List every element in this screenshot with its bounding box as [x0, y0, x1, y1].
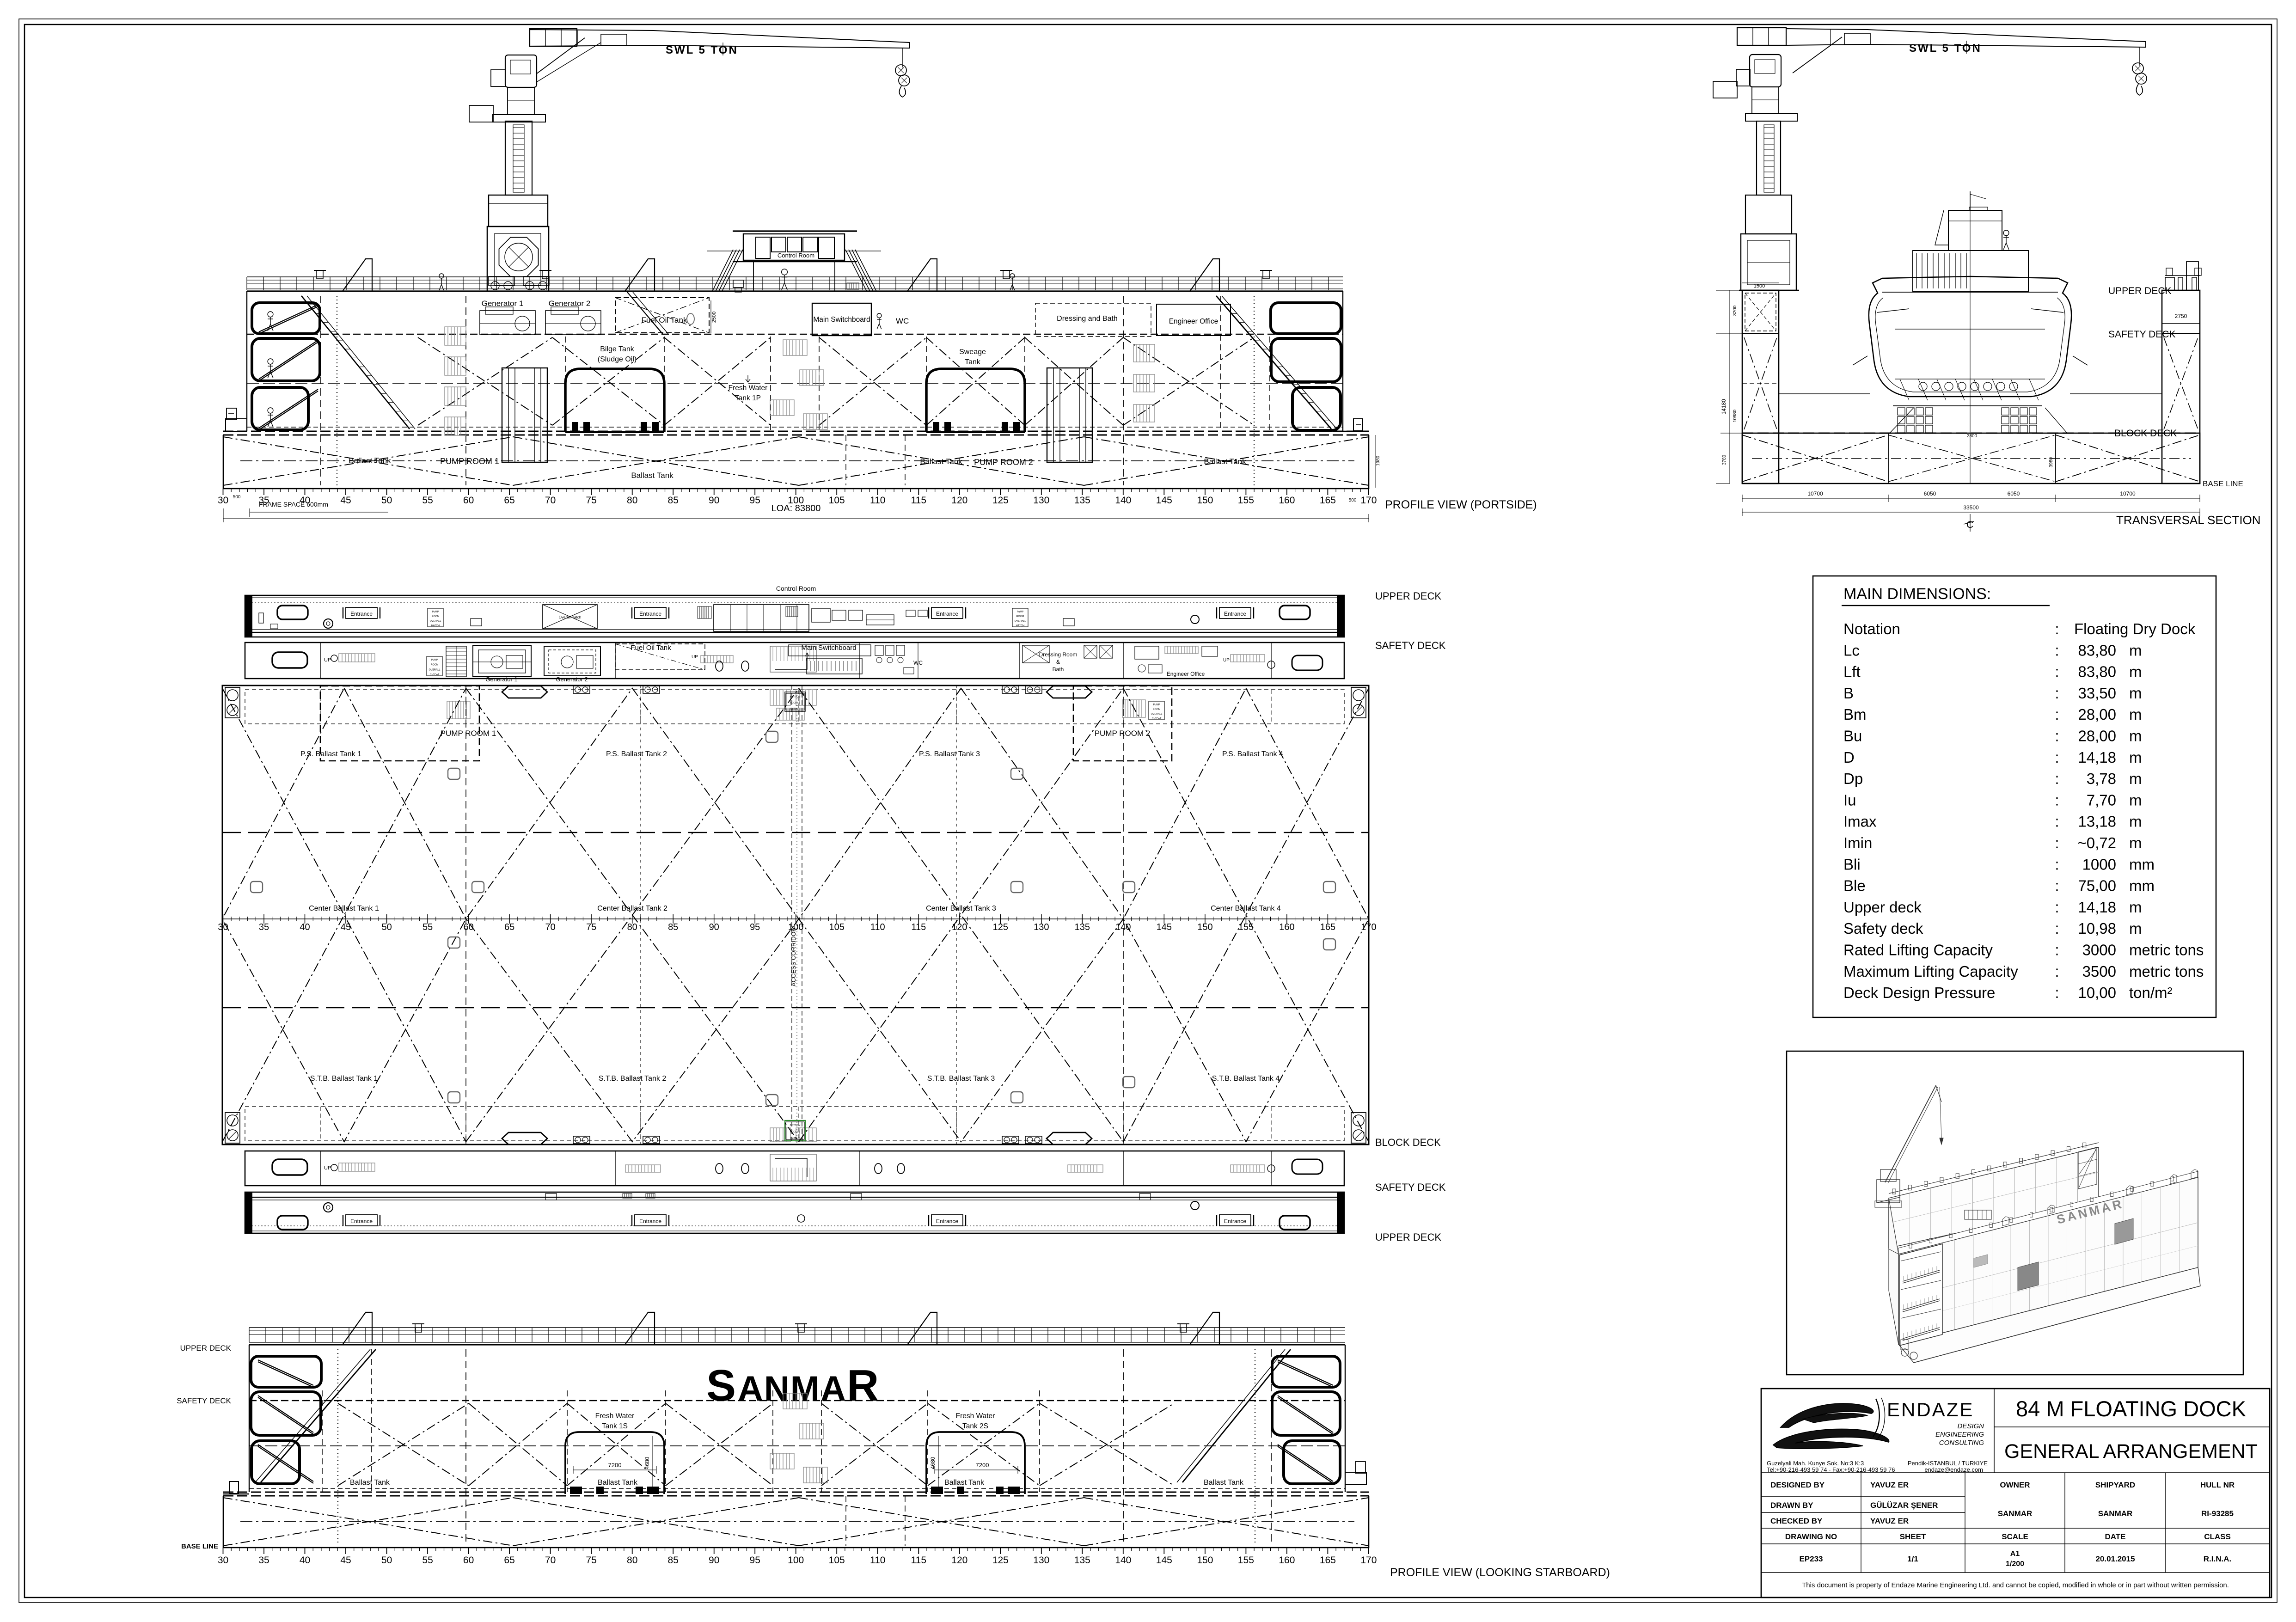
svg-text:95: 95 — [750, 1555, 760, 1566]
svg-text:130: 130 — [1034, 922, 1049, 932]
svg-text:This document is property of: This document is property of Endaze Mari… — [1802, 1581, 2229, 1589]
svg-text:EP233: EP233 — [1799, 1555, 1823, 1563]
svg-text:145: 145 — [1156, 495, 1172, 506]
svg-text:80: 80 — [627, 922, 637, 932]
svg-text:HATCH: HATCH — [1016, 624, 1024, 627]
svg-text:Bu: Bu — [1843, 728, 1862, 745]
svg-text:Tank 1P: Tank 1P — [735, 394, 761, 402]
svg-text:6050: 6050 — [1924, 490, 1936, 497]
svg-text:1980: 1980 — [1376, 455, 1381, 466]
svg-text:Ballast Tank: Ballast Tank — [920, 457, 962, 466]
svg-text:120: 120 — [951, 495, 967, 506]
svg-text:Tel:+90-216-493 59 74 - Fax:+9: Tel:+90-216-493 59 74 - Fax:+90-216-493 … — [1767, 1466, 1895, 1473]
svg-text:Ble: Ble — [1843, 877, 1866, 894]
svg-text:S.T.B. Ballast Tank 2: S.T.B. Ballast Tank 2 — [599, 1075, 667, 1083]
svg-text:45: 45 — [341, 922, 351, 932]
svg-text::: : — [2055, 663, 2059, 680]
svg-text:Entrance: Entrance — [936, 611, 958, 617]
svg-text:130: 130 — [1033, 1555, 1049, 1566]
svg-text:HULL NR: HULL NR — [2200, 1481, 2235, 1489]
svg-text:45: 45 — [340, 495, 351, 506]
svg-text:60: 60 — [463, 495, 474, 506]
svg-text:Sweage: Sweage — [959, 348, 986, 356]
svg-text::: : — [2055, 984, 2059, 1001]
svg-text:S.T.B. Ballast Tank 1: S.T.B. Ballast Tank 1 — [310, 1075, 378, 1083]
svg-text:ROOM: ROOM — [431, 664, 439, 667]
svg-text:Dp: Dp — [1843, 770, 1863, 787]
svg-text:75: 75 — [586, 922, 596, 932]
svg-text:155: 155 — [1238, 1555, 1254, 1566]
svg-text:Ballast Tank: Ballast Tank — [1204, 1479, 1244, 1487]
svg-text:83,80: 83,80 — [2078, 663, 2116, 680]
svg-text:TRANSVERSAL SECTION: TRANSVERSAL SECTION — [2116, 513, 2261, 527]
svg-text:1000: 1000 — [2082, 856, 2116, 873]
svg-text:40: 40 — [300, 1555, 310, 1566]
svg-text:SHEET: SHEET — [1900, 1532, 1926, 1541]
svg-text:Bath: Bath — [1053, 666, 1064, 673]
svg-text:115: 115 — [911, 922, 926, 932]
svg-text:95: 95 — [750, 495, 760, 506]
svg-text:3200: 3200 — [1733, 305, 1738, 316]
svg-text:R.I.N.A.: R.I.N.A. — [2204, 1555, 2231, 1563]
svg-text:1/1: 1/1 — [1907, 1555, 1918, 1563]
svg-text:ANMA: ANMA — [738, 1369, 847, 1408]
svg-text:4680: 4680 — [930, 1457, 936, 1469]
svg-text:metric tons: metric tons — [2129, 942, 2204, 959]
svg-text:SAFETY DECK: SAFETY DECK — [1375, 640, 1446, 651]
svg-text:Tank: Tank — [965, 358, 981, 366]
svg-text:Imin: Imin — [1843, 834, 1872, 851]
svg-text:ROOM: ROOM — [1016, 615, 1024, 618]
svg-text:135: 135 — [1074, 495, 1090, 506]
svg-text:S.T.B. Ballast Tank 4: S.T.B. Ballast Tank 4 — [1212, 1075, 1280, 1083]
svg-text:135: 135 — [1074, 1555, 1090, 1566]
svg-text:Ballast Tank: Ballast Tank — [631, 471, 673, 480]
svg-text:D: D — [1843, 749, 1855, 766]
svg-text::: : — [2055, 620, 2059, 637]
svg-text:115: 115 — [911, 1555, 926, 1566]
svg-text:Entrance: Entrance — [936, 1218, 958, 1224]
svg-text:ton/m²: ton/m² — [2129, 984, 2173, 1001]
svg-text:85: 85 — [668, 495, 679, 506]
svg-text:3,78: 3,78 — [2087, 770, 2116, 787]
svg-text:OVERALL: OVERALL — [429, 668, 441, 671]
svg-text:30: 30 — [218, 1555, 228, 1566]
svg-text:Entrance: Entrance — [639, 1218, 661, 1224]
svg-text:Floating Dry Dock: Floating Dry Dock — [2074, 620, 2196, 637]
svg-text:500: 500 — [233, 495, 241, 500]
svg-text:Control Room: Control Room — [776, 585, 816, 592]
svg-text:155: 155 — [1238, 495, 1254, 506]
svg-text:Engineer Office: Engineer Office — [1169, 318, 1218, 325]
svg-text:45: 45 — [340, 1555, 351, 1566]
svg-text:Fuel Oil Tank: Fuel Oil Tank — [631, 644, 671, 652]
svg-text::: : — [2055, 706, 2059, 723]
svg-text:Generator 1: Generator 1 — [482, 299, 524, 308]
svg-text:OWNER: OWNER — [2000, 1481, 2030, 1489]
svg-text:2800: 2800 — [1967, 434, 1978, 439]
svg-text:OVERALL: OVERALL — [1151, 713, 1163, 716]
svg-text:155: 155 — [1238, 922, 1254, 932]
svg-text:UPPER DECK: UPPER DECK — [1375, 590, 1441, 602]
svg-text:140: 140 — [1115, 922, 1131, 932]
svg-text:120: 120 — [951, 1555, 967, 1566]
svg-text:UP: UP — [1223, 658, 1230, 663]
svg-text:endaze@endaze.com: endaze@endaze.com — [1924, 1466, 1983, 1473]
svg-text:Notation: Notation — [1843, 620, 1900, 637]
svg-text:GENERAL ARRANGEMENT: GENERAL ARRANGEMENT — [2004, 1440, 2258, 1463]
svg-text:S: S — [706, 1361, 736, 1410]
svg-text:70: 70 — [545, 922, 555, 932]
svg-text:ROOM: ROOM — [1153, 708, 1161, 711]
svg-text:105: 105 — [829, 495, 845, 506]
svg-text:m: m — [2129, 899, 2142, 916]
svg-text:33,50: 33,50 — [2078, 685, 2116, 702]
svg-text:SWL 5 TON: SWL 5 TON — [1909, 42, 1982, 55]
svg-text:3980: 3980 — [2049, 457, 2054, 467]
svg-text:50: 50 — [381, 922, 392, 932]
svg-text:Ballast Tank: Ballast Tank — [349, 456, 391, 465]
svg-text:Lft: Lft — [1843, 663, 1861, 680]
svg-text:m: m — [2129, 706, 2142, 723]
svg-text:SANMAR: SANMAR — [1998, 1509, 2033, 1518]
svg-text:160: 160 — [1279, 1555, 1295, 1566]
svg-text:105: 105 — [829, 1555, 845, 1566]
svg-text:20.01.2015: 20.01.2015 — [2095, 1555, 2135, 1563]
svg-text:120: 120 — [952, 922, 967, 932]
svg-text:170: 170 — [1360, 495, 1377, 506]
svg-text:m: m — [2129, 728, 2142, 745]
svg-text:95: 95 — [750, 922, 760, 932]
svg-text:Deck Design Pressure: Deck Design Pressure — [1843, 984, 1995, 1001]
svg-text:135: 135 — [1075, 922, 1090, 932]
svg-text:&: & — [1056, 659, 1060, 665]
svg-text:~0,72: ~0,72 — [2078, 834, 2117, 851]
svg-text:PUMP ROOM 1: PUMP ROOM 1 — [440, 457, 499, 466]
svg-text:75: 75 — [586, 495, 596, 506]
svg-text:LOA: 83800: LOA: 83800 — [771, 503, 821, 514]
svg-text:125: 125 — [992, 495, 1009, 506]
svg-text:CONSULTING: CONSULTING — [1939, 1439, 1984, 1447]
svg-text:Generator 2: Generator 2 — [556, 676, 588, 683]
svg-text:GÜLÜZAR ŞENER: GÜLÜZAR ŞENER — [1870, 1501, 1938, 1510]
svg-text:Generator 2: Generator 2 — [549, 299, 591, 308]
svg-text:Entrance: Entrance — [639, 611, 661, 617]
svg-text:m: m — [2129, 920, 2142, 937]
svg-text:6050: 6050 — [2008, 490, 2020, 497]
svg-text:BASE LINE: BASE LINE — [2203, 479, 2243, 488]
svg-text:100: 100 — [788, 922, 803, 932]
svg-text:55: 55 — [422, 1555, 433, 1566]
svg-text:Fresh Water: Fresh Water — [729, 384, 768, 392]
svg-text::: : — [2055, 749, 2059, 766]
svg-text:BOTTOM: BOTTOM — [790, 1124, 801, 1127]
svg-text:170: 170 — [1361, 922, 1376, 932]
svg-text:84 M FLOATING DOCK: 84 M FLOATING DOCK — [2016, 1396, 2246, 1421]
svg-text:Bm: Bm — [1843, 706, 1867, 723]
svg-text::: : — [2055, 685, 2059, 702]
svg-text:110: 110 — [870, 495, 885, 506]
svg-text:3000: 3000 — [2082, 942, 2116, 959]
svg-text:3780: 3780 — [1722, 454, 1727, 465]
svg-text:30: 30 — [218, 922, 228, 932]
svg-text:150: 150 — [1197, 1555, 1213, 1566]
svg-text:SAFETY DECK: SAFETY DECK — [2108, 329, 2175, 340]
svg-text:SCALE: SCALE — [2002, 1532, 2028, 1541]
svg-text:10700: 10700 — [2120, 490, 2136, 497]
svg-text:80: 80 — [627, 495, 637, 506]
svg-text:55: 55 — [422, 922, 433, 932]
svg-text:PuMP: PuMP — [432, 611, 439, 613]
svg-text:PuMP: PuMP — [431, 659, 438, 661]
svg-text:CuTOuT: CuTOuT — [1152, 717, 1162, 720]
svg-text:DRAWN BY: DRAWN BY — [1770, 1501, 1813, 1510]
svg-text:145: 145 — [1157, 922, 1172, 932]
svg-text:1/200: 1/200 — [2006, 1560, 2024, 1568]
svg-text:50: 50 — [381, 1555, 392, 1566]
svg-text:75: 75 — [586, 1555, 596, 1566]
svg-text:14180: 14180 — [1720, 399, 1727, 415]
svg-text:Overall Hatch: Overall Hatch — [559, 615, 581, 619]
svg-text:Dressing Room: Dressing Room — [1039, 651, 1078, 658]
svg-text:YAVUZ ER: YAVUZ ER — [1870, 1481, 1909, 1489]
svg-text::: : — [2055, 834, 2059, 851]
svg-text:m: m — [2129, 663, 2142, 680]
svg-text:10,98: 10,98 — [2078, 920, 2116, 937]
svg-text::: : — [2055, 877, 2059, 894]
svg-text:28,00: 28,00 — [2078, 706, 2116, 723]
svg-text:Generator 1: Generator 1 — [485, 676, 517, 683]
svg-text:CLASS: CLASS — [2204, 1532, 2231, 1541]
svg-text:m: m — [2129, 834, 2142, 851]
svg-text:SAFETY DECK: SAFETY DECK — [1375, 1181, 1446, 1193]
svg-text:PUMP ROOM 1: PUMP ROOM 1 — [441, 729, 496, 738]
svg-text::: : — [2055, 770, 2059, 787]
svg-text:PuMP: PuMP — [1153, 704, 1160, 706]
svg-text:ENGINEERING: ENGINEERING — [1935, 1431, 1984, 1438]
svg-text::: : — [2055, 791, 2059, 808]
svg-text:Control Room: Control Room — [778, 252, 814, 259]
svg-text:PuMP: PuMP — [1017, 611, 1024, 613]
svg-text:30: 30 — [218, 495, 228, 506]
svg-text:110: 110 — [870, 922, 885, 932]
svg-text:60: 60 — [463, 1555, 474, 1566]
svg-text:140: 140 — [1115, 1555, 1131, 1566]
svg-text:170: 170 — [1360, 1555, 1377, 1566]
svg-text:Entrance: Entrance — [1224, 1218, 1246, 1224]
svg-text:4680: 4680 — [644, 1457, 650, 1469]
svg-text:metric tons: metric tons — [2129, 963, 2204, 980]
svg-text:35: 35 — [259, 922, 269, 932]
svg-text:500: 500 — [1349, 498, 1357, 503]
svg-text:ACCESS: ACCESS — [790, 702, 801, 704]
svg-text:14,18: 14,18 — [2078, 749, 2116, 766]
svg-text:Guzelyali Mah. Kunye Sok. No:3: Guzelyali Mah. Kunye Sok. No:3 K:3 — [1767, 1460, 1864, 1467]
svg-text:m: m — [2129, 770, 2142, 787]
svg-text:Tank 2S: Tank 2S — [962, 1422, 988, 1430]
svg-text:Ballast Tank: Ballast Tank — [350, 1479, 390, 1487]
svg-text:105: 105 — [829, 922, 845, 932]
svg-text:OVERALL: OVERALL — [430, 620, 441, 623]
svg-text:70: 70 — [545, 1555, 556, 1566]
svg-text:Maximum Lifting Capacity: Maximum Lifting Capacity — [1843, 963, 2018, 980]
svg-text:1500: 1500 — [1754, 283, 1765, 289]
svg-text:BLOCK DECK: BLOCK DECK — [1375, 1137, 1441, 1148]
svg-text:R: R — [847, 1361, 879, 1410]
svg-text:MAIN DIMENSIONS:: MAIN DIMENSIONS: — [1843, 585, 1991, 603]
svg-text:UP: UP — [692, 655, 698, 660]
svg-text:P.S. Ballast Tank 1: P.S. Ballast Tank 1 — [300, 750, 361, 758]
svg-text:CuTOuT: CuTOuT — [430, 673, 440, 676]
svg-text:SHIPYARD: SHIPYARD — [2095, 1481, 2135, 1489]
svg-text:75,00: 75,00 — [2078, 877, 2116, 894]
svg-text:mm: mm — [2129, 856, 2155, 873]
svg-text:85: 85 — [668, 922, 678, 932]
svg-text:125: 125 — [993, 922, 1008, 932]
svg-text:3500: 3500 — [2082, 963, 2116, 980]
svg-text:40: 40 — [300, 922, 310, 932]
svg-text:Bli: Bli — [1843, 856, 1861, 873]
svg-text:130: 130 — [1033, 495, 1049, 506]
svg-text::: : — [2055, 642, 2059, 659]
svg-text:Main Switchboard: Main Switchboard — [813, 316, 870, 324]
svg-text:165: 165 — [1320, 495, 1336, 506]
svg-text:14,18: 14,18 — [2078, 899, 2116, 916]
svg-text:90: 90 — [709, 1555, 719, 1566]
svg-text:Entrance: Entrance — [1224, 611, 1246, 617]
svg-text:Entrance: Entrance — [350, 1218, 373, 1224]
svg-text:PUMP ROOM 2: PUMP ROOM 2 — [1095, 729, 1151, 738]
svg-text:70: 70 — [545, 495, 556, 506]
svg-text:UPPER DECK: UPPER DECK — [2108, 286, 2172, 296]
svg-text:110: 110 — [870, 1555, 885, 1566]
svg-text:Engineer Office: Engineer Office — [1167, 671, 1205, 677]
svg-text:C: C — [1966, 520, 1973, 530]
svg-text::: : — [2055, 920, 2059, 937]
svg-text:35: 35 — [258, 1555, 269, 1566]
svg-text:7200: 7200 — [608, 1462, 622, 1469]
svg-text:160: 160 — [1279, 495, 1295, 506]
svg-text:WC: WC — [896, 317, 909, 325]
svg-text:m: m — [2129, 791, 2142, 808]
svg-text:(Sludge Oil): (Sludge Oil) — [598, 355, 637, 363]
svg-text:90: 90 — [709, 922, 719, 932]
svg-text:ENDAZE: ENDAZE — [1887, 1399, 1974, 1420]
svg-text:UP: UP — [324, 1165, 331, 1171]
svg-text:Fresh Water: Fresh Water — [595, 1412, 635, 1420]
svg-text:83,80: 83,80 — [2078, 642, 2116, 659]
svg-text:33500: 33500 — [1963, 504, 1979, 511]
svg-text:Dressing and Bath: Dressing and Bath — [1057, 315, 1118, 323]
svg-text:Tank 1S: Tank 1S — [602, 1422, 628, 1430]
svg-text:28,00: 28,00 — [2078, 728, 2116, 745]
svg-text:P.S. Ballast Tank 2: P.S. Ballast Tank 2 — [606, 750, 667, 758]
svg-text::: : — [2055, 856, 2059, 873]
svg-text:Upper deck: Upper deck — [1843, 899, 1922, 916]
svg-text:DESIGNED BY: DESIGNED BY — [1770, 1481, 1825, 1489]
svg-text:HATCH: HATCH — [431, 624, 440, 627]
svg-text:115: 115 — [911, 495, 926, 506]
svg-text:2750: 2750 — [2175, 313, 2187, 319]
svg-text:B: B — [1843, 685, 1854, 702]
svg-text:DATE: DATE — [2105, 1532, 2125, 1541]
svg-text::: : — [2055, 942, 2059, 959]
svg-text:10700: 10700 — [1807, 490, 1823, 497]
svg-text:SANMAR: SANMAR — [2098, 1509, 2133, 1518]
svg-text:UPPER DECK: UPPER DECK — [180, 1344, 231, 1353]
svg-text:m: m — [2129, 749, 2142, 766]
svg-text:Safety deck: Safety deck — [1843, 920, 1923, 937]
svg-text:m: m — [2129, 813, 2142, 830]
svg-text:Center Ballast Tank 2: Center Ballast Tank 2 — [597, 905, 667, 912]
svg-text:mm: mm — [2129, 877, 2155, 894]
svg-text:A1: A1 — [2010, 1550, 2020, 1558]
svg-text:2500: 2500 — [711, 312, 717, 323]
svg-text:65: 65 — [504, 1555, 514, 1566]
svg-text::: : — [2055, 899, 2059, 916]
svg-text:SWL 5 TON: SWL 5 TON — [666, 44, 738, 56]
svg-text:165: 165 — [1320, 922, 1335, 932]
svg-text:YAVUZ ER: YAVUZ ER — [1870, 1517, 1909, 1525]
svg-text:160: 160 — [1279, 922, 1294, 932]
svg-text:S.T.B. Ballast Tank 3: S.T.B. Ballast Tank 3 — [927, 1075, 995, 1083]
svg-text:UP: UP — [324, 657, 331, 663]
svg-text:OVERALL: OVERALL — [1015, 620, 1026, 623]
svg-text:10,00: 10,00 — [2078, 984, 2116, 1001]
svg-text:Bilge Tank: Bilge Tank — [600, 345, 635, 353]
svg-text:P.S. Ballast Tank 3: P.S. Ballast Tank 3 — [919, 750, 980, 758]
svg-text:Center Ballast Tank 1: Center Ballast Tank 1 — [309, 905, 379, 912]
svg-text:10980: 10980 — [1733, 410, 1738, 422]
svg-text:PUMP ROOM 2: PUMP ROOM 2 — [974, 458, 1033, 467]
svg-text:80: 80 — [627, 1555, 637, 1566]
svg-text:m: m — [2129, 642, 2142, 659]
svg-text:85: 85 — [668, 1555, 679, 1566]
svg-text:Lc: Lc — [1843, 642, 1860, 659]
svg-text:ACCESS CORRIDOR: ACCESS CORRIDOR — [790, 927, 797, 986]
svg-text:Rated Lifting Capacity: Rated Lifting Capacity — [1843, 942, 1993, 959]
svg-text:SAFETY DECK: SAFETY DECK — [177, 1396, 231, 1405]
svg-text:DESIGN: DESIGN — [1957, 1422, 1984, 1430]
svg-text:FRAME SPACE 600mm: FRAME SPACE 600mm — [259, 501, 328, 508]
svg-text:60: 60 — [463, 922, 473, 932]
svg-text:Center Ballast Tank 4: Center Ballast Tank 4 — [1211, 905, 1281, 912]
svg-text:DRAWING NO: DRAWING NO — [1785, 1532, 1837, 1541]
svg-text:Pendik-ISTANBUL / TURKIYE: Pendik-ISTANBUL / TURKIYE — [1908, 1460, 1988, 1467]
svg-text:140: 140 — [1115, 495, 1131, 506]
svg-text:BLOCK DECK: BLOCK DECK — [2114, 428, 2177, 439]
svg-text:7,70: 7,70 — [2087, 791, 2116, 808]
svg-text:50: 50 — [381, 495, 392, 506]
svg-text::: : — [2055, 813, 2059, 830]
svg-text:65: 65 — [504, 495, 514, 506]
svg-text:165: 165 — [1320, 1555, 1336, 1566]
svg-text:Center Ballast Tank 3: Center Ballast Tank 3 — [926, 905, 996, 912]
svg-text:UPPER DECK: UPPER DECK — [1375, 1231, 1441, 1243]
svg-text:RI-93285: RI-93285 — [2201, 1509, 2234, 1518]
svg-text:Entrance: Entrance — [350, 611, 373, 617]
svg-text:100: 100 — [788, 1555, 804, 1566]
svg-text:P.S. Ballast Tank 4: P.S. Ballast Tank 4 — [1222, 750, 1283, 758]
svg-text::: : — [2055, 728, 2059, 745]
svg-text:Ballast Tank: Ballast Tank — [1204, 457, 1246, 466]
svg-text:13,18: 13,18 — [2078, 813, 2116, 830]
svg-text:Fuel Oil Tank: Fuel Oil Tank — [642, 316, 687, 324]
svg-text:Fresh Water: Fresh Water — [956, 1412, 995, 1420]
svg-text:Iu: Iu — [1843, 791, 1856, 808]
svg-text:Imax: Imax — [1843, 813, 1877, 830]
svg-text:90: 90 — [709, 495, 719, 506]
